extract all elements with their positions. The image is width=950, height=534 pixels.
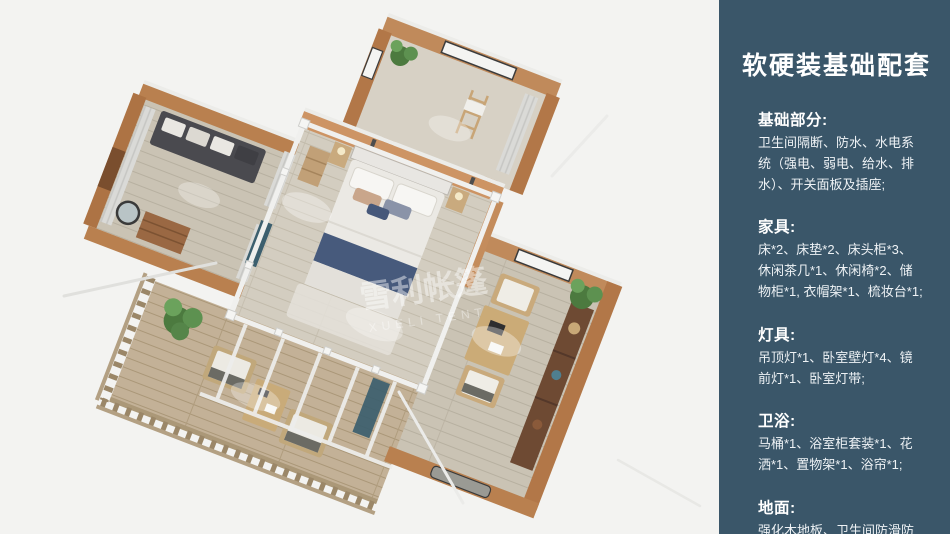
section-flooring: 地面: 强化木地板、卫生间防滑防潮石塑板; [758, 496, 924, 534]
floorplan-render-area: 雪利帐篷 XUELI TENT [0, 0, 719, 534]
floorplan-illustration: 雪利帐篷 XUELI TENT [0, 0, 719, 534]
section-body: 吊顶灯*1、卧室壁灯*4、镜前灯*1、卧室灯带; [758, 348, 924, 390]
section-bathroom: 卫浴: 马桶*1、浴室柜套装*1、花洒*1、置物架*1、浴帘*1; [758, 409, 924, 476]
section-basics: 基础部分: 卫生间隔断、防水、水电系统（强电、弱电、给水、排水）、开关面板及插座… [758, 108, 924, 195]
section-lighting: 灯具: 吊顶灯*1、卧室壁灯*4、镜前灯*1、卧室灯带; [758, 323, 924, 390]
section-heading: 地面: [758, 496, 924, 518]
section-heading: 灯具: [758, 323, 924, 345]
section-body: 床*2、床垫*2、床头柜*3、休闲茶几*1、休闲椅*2、储物柜*1, 衣帽架*1… [758, 240, 924, 302]
slide: 雪利帐篷 XUELI TENT 软硬装基础配套 基础部分: 卫生间隔断、防水、水… [0, 0, 950, 534]
panel-title: 软硬装基础配套 [719, 0, 950, 82]
spec-panel: 软硬装基础配套 基础部分: 卫生间隔断、防水、水电系统（强电、弱电、给水、排水）… [719, 0, 950, 534]
section-heading: 家具: [758, 215, 924, 237]
section-heading: 卫浴: [758, 409, 924, 431]
section-body: 马桶*1、浴室柜套装*1、花洒*1、置物架*1、浴帘*1; [758, 434, 924, 476]
spec-sections: 基础部分: 卫生间隔断、防水、水电系统（强电、弱电、给水、排水）、开关面板及插座… [719, 82, 950, 534]
section-body: 卫生间隔断、防水、水电系统（强电、弱电、给水、排水）、开关面板及插座; [758, 133, 924, 195]
section-heading: 基础部分: [758, 108, 924, 130]
section-body: 强化木地板、卫生间防滑防潮石塑板; [758, 521, 924, 534]
section-furniture: 家具: 床*2、床垫*2、床头柜*3、休闲茶几*1、休闲椅*2、储物柜*1, 衣… [758, 215, 924, 302]
